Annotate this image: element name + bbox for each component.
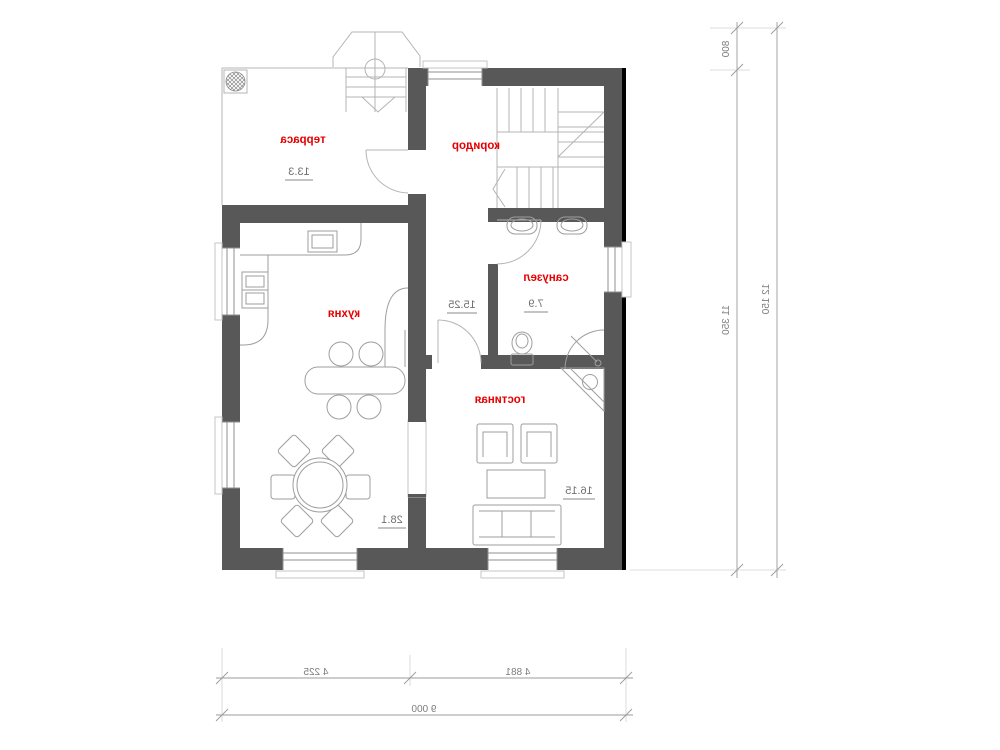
window-bathroom-right <box>604 242 631 297</box>
doors <box>366 150 541 497</box>
bar-stool <box>327 395 351 419</box>
armchair <box>521 424 557 463</box>
dining-furniture <box>271 434 370 538</box>
bar-stool <box>357 395 381 419</box>
dim-right-total: 12 150 <box>761 284 772 315</box>
dining-table <box>293 458 347 512</box>
facade-accent-strip <box>622 68 626 570</box>
room-area-living: 16.15 <box>565 485 593 497</box>
room-label-living: гостиная <box>475 394 526 406</box>
room-label-bathroom: санузел <box>523 272 568 284</box>
floor-plan: терраса коридор санузел кухня гостиная 1… <box>0 0 1000 750</box>
bar-stool <box>359 342 383 366</box>
room-area-corridor: 15.25 <box>448 299 476 311</box>
steps-arrow <box>362 97 395 112</box>
dim-right-main: 11 350 <box>721 305 732 335</box>
room-label-terrace: терраса <box>280 134 326 146</box>
kitchen-furniture <box>240 223 408 419</box>
opening-kitchen-living <box>408 419 426 497</box>
armchair <box>477 424 513 463</box>
dim-right-top: 800 <box>721 41 732 58</box>
window-left-dining <box>215 417 240 494</box>
window-bottom-living <box>481 548 564 578</box>
room-label-corridor: коридор <box>452 140 500 152</box>
window-bottom-dining <box>276 548 364 578</box>
window-top <box>423 61 487 86</box>
bar-counter <box>305 367 405 394</box>
door-bathroom <box>497 220 541 264</box>
corner-fireplace <box>561 368 604 411</box>
sofa <box>473 505 561 545</box>
dim-bottom-right: 4 881 <box>505 667 530 678</box>
bar-column <box>385 288 408 367</box>
dim-bottom-left: 4 225 <box>303 667 328 678</box>
bathroom-fixtures <box>507 217 604 369</box>
entrance-canopy <box>333 32 420 112</box>
door-corridor-living <box>438 320 481 363</box>
door-terrace-corridor <box>366 150 408 193</box>
window-left-kitchen <box>215 243 240 320</box>
floor-plan-canvas: терраса коридор санузел кухня гостиная 1… <box>0 0 1000 750</box>
dimension-lines: 800 11 350 12 150 4 225 4 881 9 000 <box>216 22 786 722</box>
column-hatch-circle <box>226 72 245 91</box>
room-area-kitchen: 28.1 <box>381 514 402 526</box>
staircase <box>493 88 604 208</box>
room-area-bathroom: 7.9 <box>528 298 543 310</box>
dim-bottom-total: 9 000 <box>411 704 436 715</box>
stove <box>242 272 268 308</box>
bar-stool <box>329 342 353 366</box>
coffee-table <box>487 470 545 498</box>
stairs-direction-arrow <box>493 169 505 207</box>
room-area-terrace: 13.3 <box>288 166 309 178</box>
room-label-kitchen: кухня <box>328 308 360 320</box>
